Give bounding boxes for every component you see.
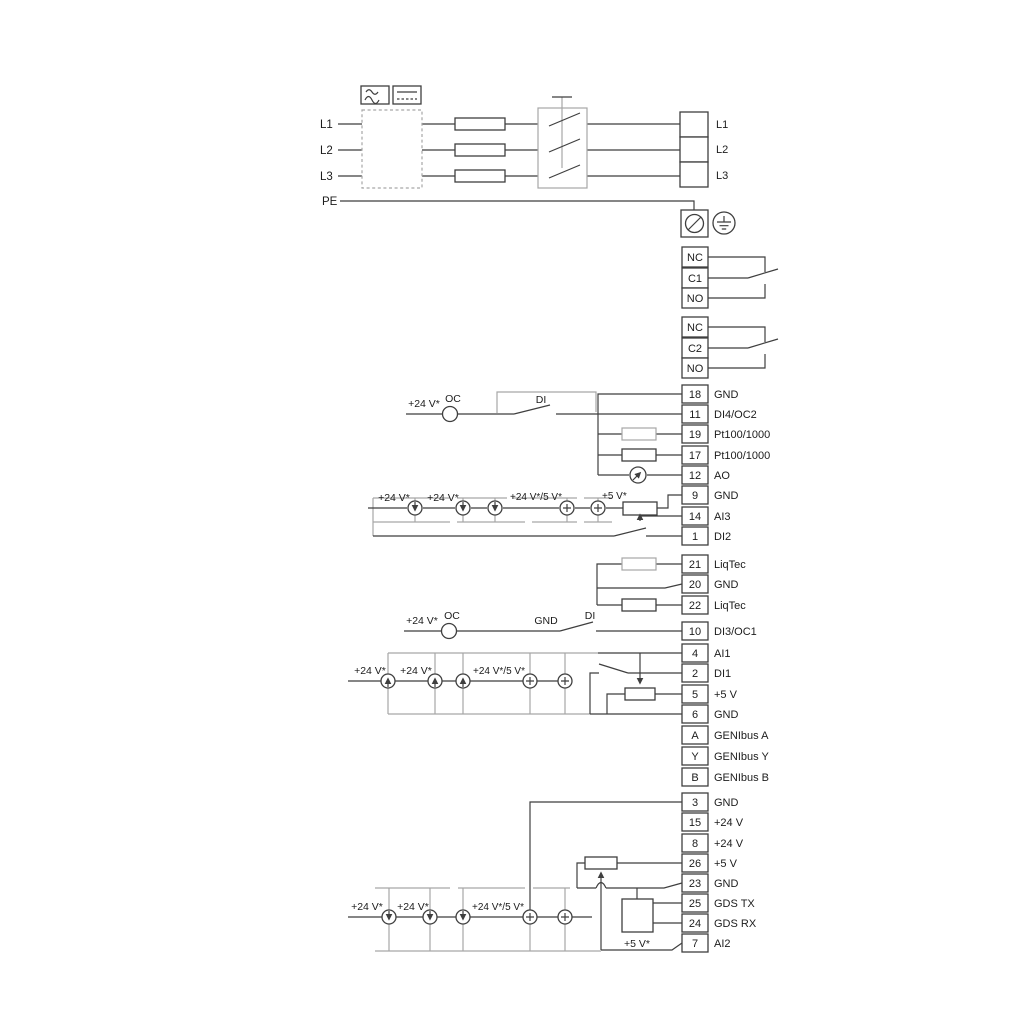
terminal-row-12: 12 AO [682, 466, 730, 484]
terminal-row-2: 2 DI1 [682, 664, 731, 682]
voltage-source-icon [558, 910, 572, 924]
terminal-label: Pt100/1000 [714, 450, 770, 462]
current-source-icon [456, 910, 470, 924]
terminal-row-22: 22 LiqTec [682, 596, 746, 614]
io2-wires [348, 653, 682, 714]
terminal-row-8: 8 +24 V [682, 834, 744, 852]
label-plus24v: +24 V* [354, 665, 386, 677]
terminal-label: AI1 [714, 648, 731, 660]
terminal-number: 20 [689, 579, 701, 591]
terminal-row-y: Y GENIbus Y [682, 747, 769, 765]
earth-ground-icon [713, 212, 735, 234]
ac-symbol-box [361, 86, 389, 104]
terminal-label: AI2 [714, 938, 731, 950]
relay2-nc: NC [687, 322, 703, 334]
terminal-number: 5 [692, 689, 698, 701]
relay-1: NC C1 NO [682, 247, 778, 308]
terminal-label: GND [714, 709, 739, 721]
wiring-diagram: L1 L2 L3 PE L1 L2 L3 [0, 0, 1024, 1024]
terminal-number: A [691, 730, 699, 742]
voltage-source-icon [523, 910, 537, 924]
terminal-label: +5 V [714, 858, 738, 870]
relay2-c2: C2 [688, 343, 702, 355]
current-source-icon [488, 501, 502, 515]
terminal-number: 2 [692, 668, 698, 680]
analog-output-icon [630, 467, 646, 483]
fuse-l3-icon [455, 170, 505, 182]
terminal-label: GENIbus A [714, 730, 769, 742]
terminal-row-7: 7 AI2 [682, 934, 731, 952]
terminal-number: 11 [689, 409, 700, 421]
current-source-icon [456, 674, 470, 688]
terminal-row-5: 5 +5 V [682, 685, 738, 703]
terminal-row-15: 15 +24 V [682, 813, 744, 831]
label-plus24v-5v: +24 V*/5 V* [473, 666, 525, 677]
terminal-row-21: 21 LiqTec [682, 555, 746, 573]
relay1-no: NO [687, 293, 704, 305]
terminal-label-l3: L3 [716, 170, 728, 182]
mains-label-l3: L3 [320, 171, 333, 183]
pt100-resistor-icon [622, 449, 656, 461]
relay1-contact-icon [708, 257, 778, 298]
open-collector-icon [442, 624, 457, 639]
terminal-row-19: 19 Pt100/1000 [682, 425, 770, 443]
voltage-source-icon [591, 501, 605, 515]
dc-symbol-box [393, 86, 421, 104]
voltage-source-icon [523, 674, 537, 688]
terminal-row-4: 4 AI1 [682, 644, 731, 662]
terminal-row-9: 9 GND [682, 486, 739, 504]
label-plus24v: +24 V* [397, 901, 429, 913]
open-collector-icon [443, 407, 458, 422]
potentiometer [585, 857, 617, 869]
label-plus5v: +5 V* [602, 491, 627, 502]
terminal-row-25: 25 GDS TX [682, 894, 755, 912]
terminal-number: Y [691, 751, 699, 763]
voltage-source-icon [560, 501, 574, 515]
terminal-number: 10 [689, 626, 701, 638]
terminal-label: GND [714, 490, 739, 502]
terminal-number: 7 [692, 938, 698, 950]
label-plus24v: +24 V* [406, 615, 438, 627]
genibus-group: A GENIbus A Y GENIbus Y B GENIbus B [682, 726, 769, 786]
liqtec-sensor-icon [622, 558, 656, 570]
relay2-no: NO [687, 363, 704, 375]
terminal-label: GENIbus B [714, 772, 769, 784]
terminal-label: GENIbus Y [714, 751, 769, 763]
terminal-label-l1: L1 [716, 119, 728, 131]
terminal-label: GND [714, 579, 739, 591]
voltage-source-icon [558, 674, 572, 688]
terminal-number: 9 [692, 490, 698, 502]
current-source-icon [408, 501, 422, 515]
terminal-label-l2: L2 [716, 144, 728, 156]
terminal-number: 3 [692, 797, 698, 809]
terminal-label: +5 V [714, 689, 738, 701]
terminal-number: 25 [689, 898, 701, 910]
terminal-number: 6 [692, 709, 698, 721]
terminal-number: 8 [692, 838, 698, 850]
terminal-number: 23 [689, 878, 701, 890]
current-source-icon [382, 910, 396, 924]
terminal-label: DI4/OC2 [714, 409, 757, 421]
potentiometer [625, 688, 655, 700]
terminal-number: 4 [692, 648, 698, 660]
terminal-number: 15 [689, 817, 701, 829]
terminal-label: DI2 [714, 531, 731, 543]
label-gnd: GND [534, 615, 558, 627]
mains-terminal-block: L1 L2 L3 [680, 112, 728, 187]
terminal-row-14: 14 AI3 [682, 507, 731, 525]
relay1-nc: NC [687, 252, 703, 264]
pe-terminal-icon [681, 210, 708, 237]
di-option-box [497, 392, 596, 413]
label-plus24v-5v: +24 V*/5 V* [510, 492, 562, 503]
terminal-label: +24 V [714, 817, 744, 829]
terminal-number: 26 [689, 858, 701, 870]
label-oc: OC [445, 393, 461, 405]
pt100-resistor-icon [622, 428, 656, 440]
terminal-row-26: 26 +5 V [682, 854, 738, 872]
label-plus24v: +24 V* [400, 665, 432, 677]
label-oc: OC [444, 610, 460, 622]
relay2-contact-icon [708, 327, 778, 368]
fuse-l1-icon [455, 118, 505, 130]
label-plus24v-5v: +24 V*/5 V* [472, 902, 524, 913]
terminal-number: 22 [689, 600, 701, 612]
terminal-label: +24 V [714, 838, 744, 850]
emc-filter-box [362, 110, 422, 188]
mains-wires [338, 124, 694, 210]
terminal-row-20: 20 GND [682, 575, 739, 593]
terminal-number: 1 [692, 531, 698, 543]
io-group-2: 4 AI1 2 DI1 5 +5 V 6 GND [348, 644, 739, 723]
terminal-label: AI3 [714, 511, 731, 523]
terminal-row-1: 1 DI2 [682, 527, 731, 545]
terminal-row-23: 23 GND [682, 874, 739, 892]
terminal-label: LiqTec [714, 600, 746, 612]
label-plus24v: +24 V* [351, 901, 383, 913]
terminal-label: GND [714, 389, 739, 401]
terminal-number: 18 [689, 389, 701, 401]
terminal-label: GND [714, 797, 739, 809]
mains-label-l2: L2 [320, 145, 333, 157]
gds-sensor-box [622, 899, 653, 932]
mains-label-l1: L1 [320, 119, 333, 131]
terminal-number: 17 [689, 450, 701, 462]
mains-label-pe: PE [322, 196, 338, 208]
terminal-label: DI3/OC1 [714, 626, 757, 638]
label-plus24v: +24 V* [427, 492, 459, 504]
relay1-c1: C1 [688, 273, 702, 285]
terminal-row-17: 17 Pt100/1000 [682, 446, 770, 464]
terminal-label: GND [714, 878, 739, 890]
terminal-number: 24 [689, 918, 701, 930]
terminal-label: DI1 [714, 668, 731, 680]
label-plus24v: +24 V* [378, 492, 410, 504]
terminal-number: 19 [689, 429, 701, 441]
liqtec-sensor-icon [622, 599, 656, 611]
liqtec-group: 21 LiqTec 20 GND 22 LiqTec [597, 555, 746, 614]
io-group-3: 3 GND 15 +24 V 8 +24 V 26 +5 V 23 GND 25… [348, 793, 757, 952]
terminal-number: 12 [689, 470, 701, 482]
label-plus24v: +24 V* [408, 398, 440, 410]
potentiometer [623, 502, 657, 515]
io-group-1: 18 GND 11 DI4/OC2 19 Pt100/1000 17 Pt100… [368, 385, 770, 545]
terminal-row-11: 11 DI4/OC2 [682, 405, 757, 423]
terminal-label: GDS RX [714, 918, 757, 930]
terminal-label: LiqTec [714, 559, 746, 571]
terminal-row-18: 18 GND [682, 385, 739, 403]
terminal-number: 21 [689, 559, 701, 571]
terminal-number: B [691, 772, 698, 784]
terminal-row-a: A GENIbus A [682, 726, 769, 744]
label-di: DI [585, 610, 596, 622]
terminal-label: AO [714, 470, 730, 482]
fuse-l2-icon [455, 144, 505, 156]
wiring-diagram-page: L1 L2 L3 PE L1 L2 L3 [0, 0, 1024, 1024]
terminal-row-6: 6 GND [682, 705, 739, 723]
mains-section: L1 L2 L3 PE L1 L2 L3 [320, 86, 735, 237]
terminal-row-3: 3 GND [682, 793, 739, 811]
terminal-label: GDS TX [714, 898, 755, 910]
terminal-row-24: 24 GDS RX [682, 914, 757, 932]
relay-2: NC C2 NO [682, 317, 778, 378]
terminal-row-b: B GENIbus B [682, 768, 769, 786]
terminal-number: 14 [689, 511, 701, 523]
terminal-label: Pt100/1000 [714, 429, 770, 441]
label-di: DI [536, 394, 547, 406]
label-plus5v: +5 V* [624, 938, 650, 950]
